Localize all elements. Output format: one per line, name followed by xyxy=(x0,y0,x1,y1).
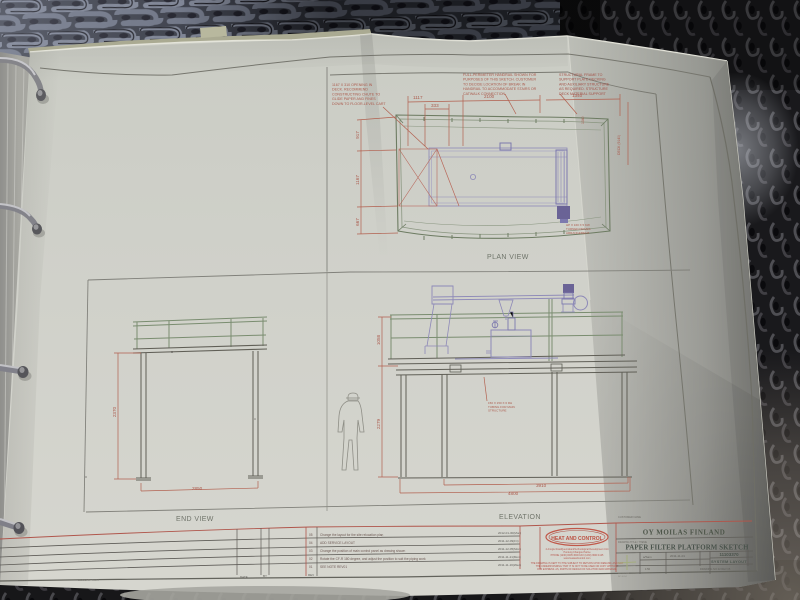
svg-text:03: 03 xyxy=(309,549,313,553)
svg-text:PLAN VIEW: PLAN VIEW xyxy=(487,254,529,261)
svg-text:1117: 1117 xyxy=(413,95,423,100)
svg-text:1340: 1340 xyxy=(581,116,585,124)
svg-text:ADD SERVICE LAYOUT: ADD SERVICE LAYOUT xyxy=(320,541,355,545)
svg-text:2011-11-21(Mon): 2011-11-21(Mon) xyxy=(498,555,521,559)
svg-text:REV: REV xyxy=(308,573,314,577)
svg-text:OUR EXPRESS. AS, PARTS OF DESI: OUR EXPRESS. AS, PARTS OF DESIGN OF SOLU… xyxy=(537,568,617,571)
svg-text:01: 01 xyxy=(309,565,313,569)
svg-text:ELEVATION: ELEVATION xyxy=(499,514,541,521)
svg-text:2011-11-16(Wed): 2011-11-16(Wed) xyxy=(498,563,521,567)
svg-text:BY: BY xyxy=(263,574,267,578)
svg-text:END VIEW: END VIEW xyxy=(176,516,214,523)
svg-text:ARRANGEMENT: ARRANGEMENT xyxy=(566,231,590,235)
svg-text:Change the position of main co: Change the position of main control pane… xyxy=(320,549,405,553)
svg-text:2011-12-05(Mon): 2011-12-05(Mon) xyxy=(498,547,521,551)
svg-text:2850: 2850 xyxy=(192,486,203,491)
svg-text:3910: 3910 xyxy=(536,483,547,488)
svg-text:2012-01-30(Mon): 2012-01-30(Mon) xyxy=(498,531,521,535)
svg-text:2011-11-01: 2011-11-01 xyxy=(670,554,685,558)
svg-text:2370: 2370 xyxy=(112,406,117,417)
svg-text:DATE: DATE xyxy=(240,575,248,579)
svg-text:Change the layout for the sit: Change the layout for the site relocatio… xyxy=(320,533,383,537)
svg-text:917: 917 xyxy=(355,131,360,139)
svg-text:SYSTEM LAYOUT: SYSTEM LAYOUT xyxy=(711,560,747,564)
svg-text:www.heatandcontrol.com: www.heatandcontrol.com xyxy=(564,557,591,560)
svg-text:4800: 4800 xyxy=(508,491,519,496)
svg-text:11103370: 11103370 xyxy=(719,552,739,557)
svg-text:OY MOILAS FINLAND: OY MOILAS FINLAND xyxy=(643,529,726,537)
svg-text:PAPER FILTER PLATFORM SKETCH: PAPER FILTER PLATFORM SKETCH xyxy=(625,545,749,552)
svg-text:333: 333 xyxy=(431,103,439,108)
svg-text:CUSTOMER NAME: CUSTOMER NAME xyxy=(618,515,641,519)
svg-text:667: 667 xyxy=(355,218,360,226)
svg-text:2279: 2279 xyxy=(376,418,381,429)
svg-text:NO 4014: NO 4014 xyxy=(618,576,628,578)
svg-text:DECK (9140): DECK (9140) xyxy=(617,135,621,155)
svg-text:a/Sam: a/Sam xyxy=(643,555,652,559)
svg-text:05: 05 xyxy=(309,533,313,537)
svg-text:REGISTER: REGISTER xyxy=(618,573,630,575)
svg-text:04: 04 xyxy=(309,541,313,545)
svg-text:STRUCTURAL FRAME TOSUPPORT PLA: STRUCTURAL FRAME TOSUPPORT PLATE DECKING… xyxy=(559,73,610,96)
svg-text:DESCRIPTION: DESCRIPTION xyxy=(78,578,99,582)
svg-text:1058: 1058 xyxy=(376,334,381,345)
svg-text:Rotate the CF-R 180 degree, an: Rotate the CF-R 180 degree, and adjust t… xyxy=(320,557,426,561)
svg-text:1167: 1167 xyxy=(355,175,360,185)
svg-text:1:50: 1:50 xyxy=(645,567,651,571)
svg-text:02: 02 xyxy=(309,557,313,561)
svg-text:SEE NOTE REV01: SEE NOTE REV01 xyxy=(320,565,347,569)
svg-text:2011-12-09(Fri): 2011-12-09(Fri) xyxy=(498,539,519,543)
svg-text:HEAT AND CONTROL: HEAT AND CONTROL xyxy=(551,536,602,542)
svg-text:DRAWING NO 02 REV 05: DRAWING NO 02 REV 05 xyxy=(700,567,731,571)
